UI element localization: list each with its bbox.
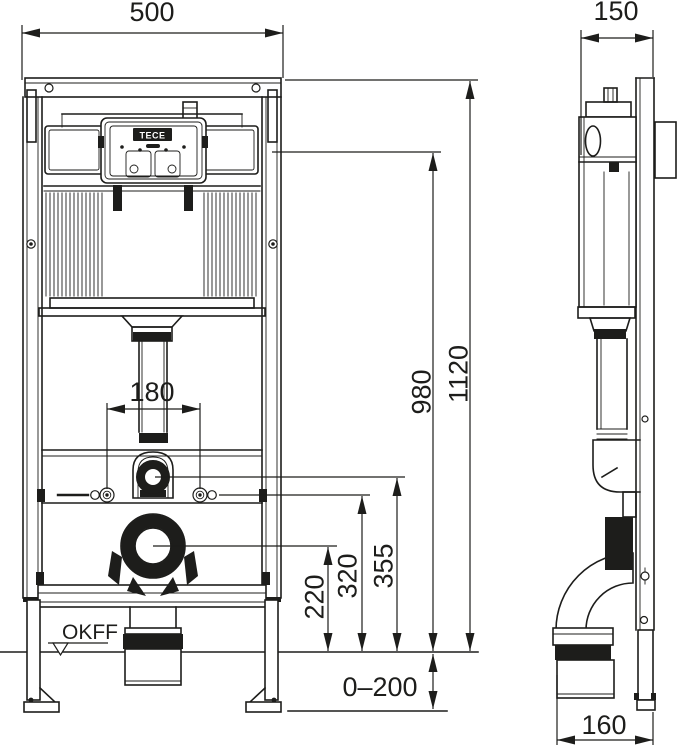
filler-tube bbox=[183, 102, 197, 119]
flush-pipe bbox=[122, 316, 182, 498]
access-panel: TECE bbox=[98, 118, 208, 211]
arrow-icon bbox=[393, 478, 402, 496]
left-foot bbox=[24, 600, 59, 712]
side-frame bbox=[634, 78, 676, 710]
dim-label: 320 bbox=[332, 553, 362, 598]
arrow-icon bbox=[429, 691, 438, 709]
cistern-tray bbox=[50, 298, 254, 308]
arrow-icon bbox=[393, 633, 402, 651]
arrow-icon bbox=[466, 81, 475, 99]
crossbar-hole bbox=[252, 84, 260, 92]
brand-logo: TECE bbox=[139, 131, 165, 141]
wall-bracket-left bbox=[27, 90, 36, 142]
arrow-icon bbox=[581, 34, 599, 43]
dim-label: 150 bbox=[593, 0, 638, 26]
arrow-icon bbox=[429, 153, 438, 171]
crossbar-hole bbox=[45, 84, 53, 92]
insulation-ribs-right bbox=[204, 193, 256, 296]
dim-label: 355 bbox=[368, 543, 398, 588]
fill-valve bbox=[604, 88, 617, 102]
outlet-pipe bbox=[125, 649, 181, 685]
arrow-icon bbox=[358, 633, 367, 651]
flush-unit-arm-right bbox=[201, 126, 258, 174]
dim-label: 220 bbox=[299, 574, 329, 619]
lower-crossbar bbox=[38, 585, 266, 607]
level-triangle-icon bbox=[53, 643, 68, 655]
arrow-icon bbox=[324, 547, 333, 565]
dim-label: 180 bbox=[129, 377, 174, 407]
arrow-icon bbox=[107, 405, 125, 414]
dim-front-width: 500 bbox=[22, 0, 283, 80]
side-outlet-pipe bbox=[557, 660, 614, 698]
insulation-ribs-left bbox=[46, 193, 102, 296]
dim-label: 1120 bbox=[443, 345, 473, 403]
dim-label: 980 bbox=[406, 369, 436, 414]
cistern-body-side bbox=[579, 117, 636, 307]
drain-socket bbox=[108, 514, 198, 596]
wall-plate bbox=[655, 122, 676, 178]
side-drain bbox=[553, 517, 633, 698]
rail-hole bbox=[642, 416, 648, 422]
drawing-canvas: TECE bbox=[0, 0, 678, 746]
rail-hole bbox=[641, 572, 649, 580]
dim-fixing-height: 320 bbox=[219, 495, 370, 651]
floor-level-marker: OKFF bbox=[48, 621, 118, 655]
arrow-icon bbox=[557, 736, 575, 745]
arrow-icon bbox=[635, 34, 653, 43]
side-view bbox=[553, 78, 676, 710]
dim-label: 500 bbox=[129, 0, 174, 27]
wall-bracket-right bbox=[268, 90, 277, 142]
arrow-icon bbox=[324, 633, 333, 651]
arrow-icon bbox=[635, 736, 653, 745]
right-foot bbox=[246, 600, 281, 712]
top-crossbar bbox=[25, 78, 281, 97]
technical-drawing: TECE bbox=[0, 0, 678, 746]
arrow-icon bbox=[182, 405, 200, 414]
flush-unit-arm-left bbox=[45, 126, 103, 174]
arrow-icon bbox=[429, 654, 438, 672]
arrow-icon bbox=[358, 496, 367, 514]
arrow-icon bbox=[466, 633, 475, 651]
side-flush-bend bbox=[593, 440, 640, 492]
arrow-icon bbox=[429, 633, 438, 651]
dim-label: 0–200 bbox=[342, 672, 417, 702]
side-flush-pipe bbox=[590, 318, 640, 517]
drain-connector-block bbox=[605, 517, 633, 570]
fixing-bolts bbox=[58, 488, 216, 502]
floor-level-label: OKFF bbox=[62, 621, 118, 644]
arrow-icon bbox=[265, 29, 283, 38]
outlet-front bbox=[123, 607, 183, 685]
side-cistern bbox=[578, 88, 636, 318]
arrow-icon bbox=[22, 29, 40, 38]
rail-hole bbox=[641, 617, 648, 624]
side-foot bbox=[634, 630, 656, 710]
dim-label: 160 bbox=[581, 710, 626, 740]
dim-leg-adjustment: 0–200 bbox=[342, 654, 437, 709]
